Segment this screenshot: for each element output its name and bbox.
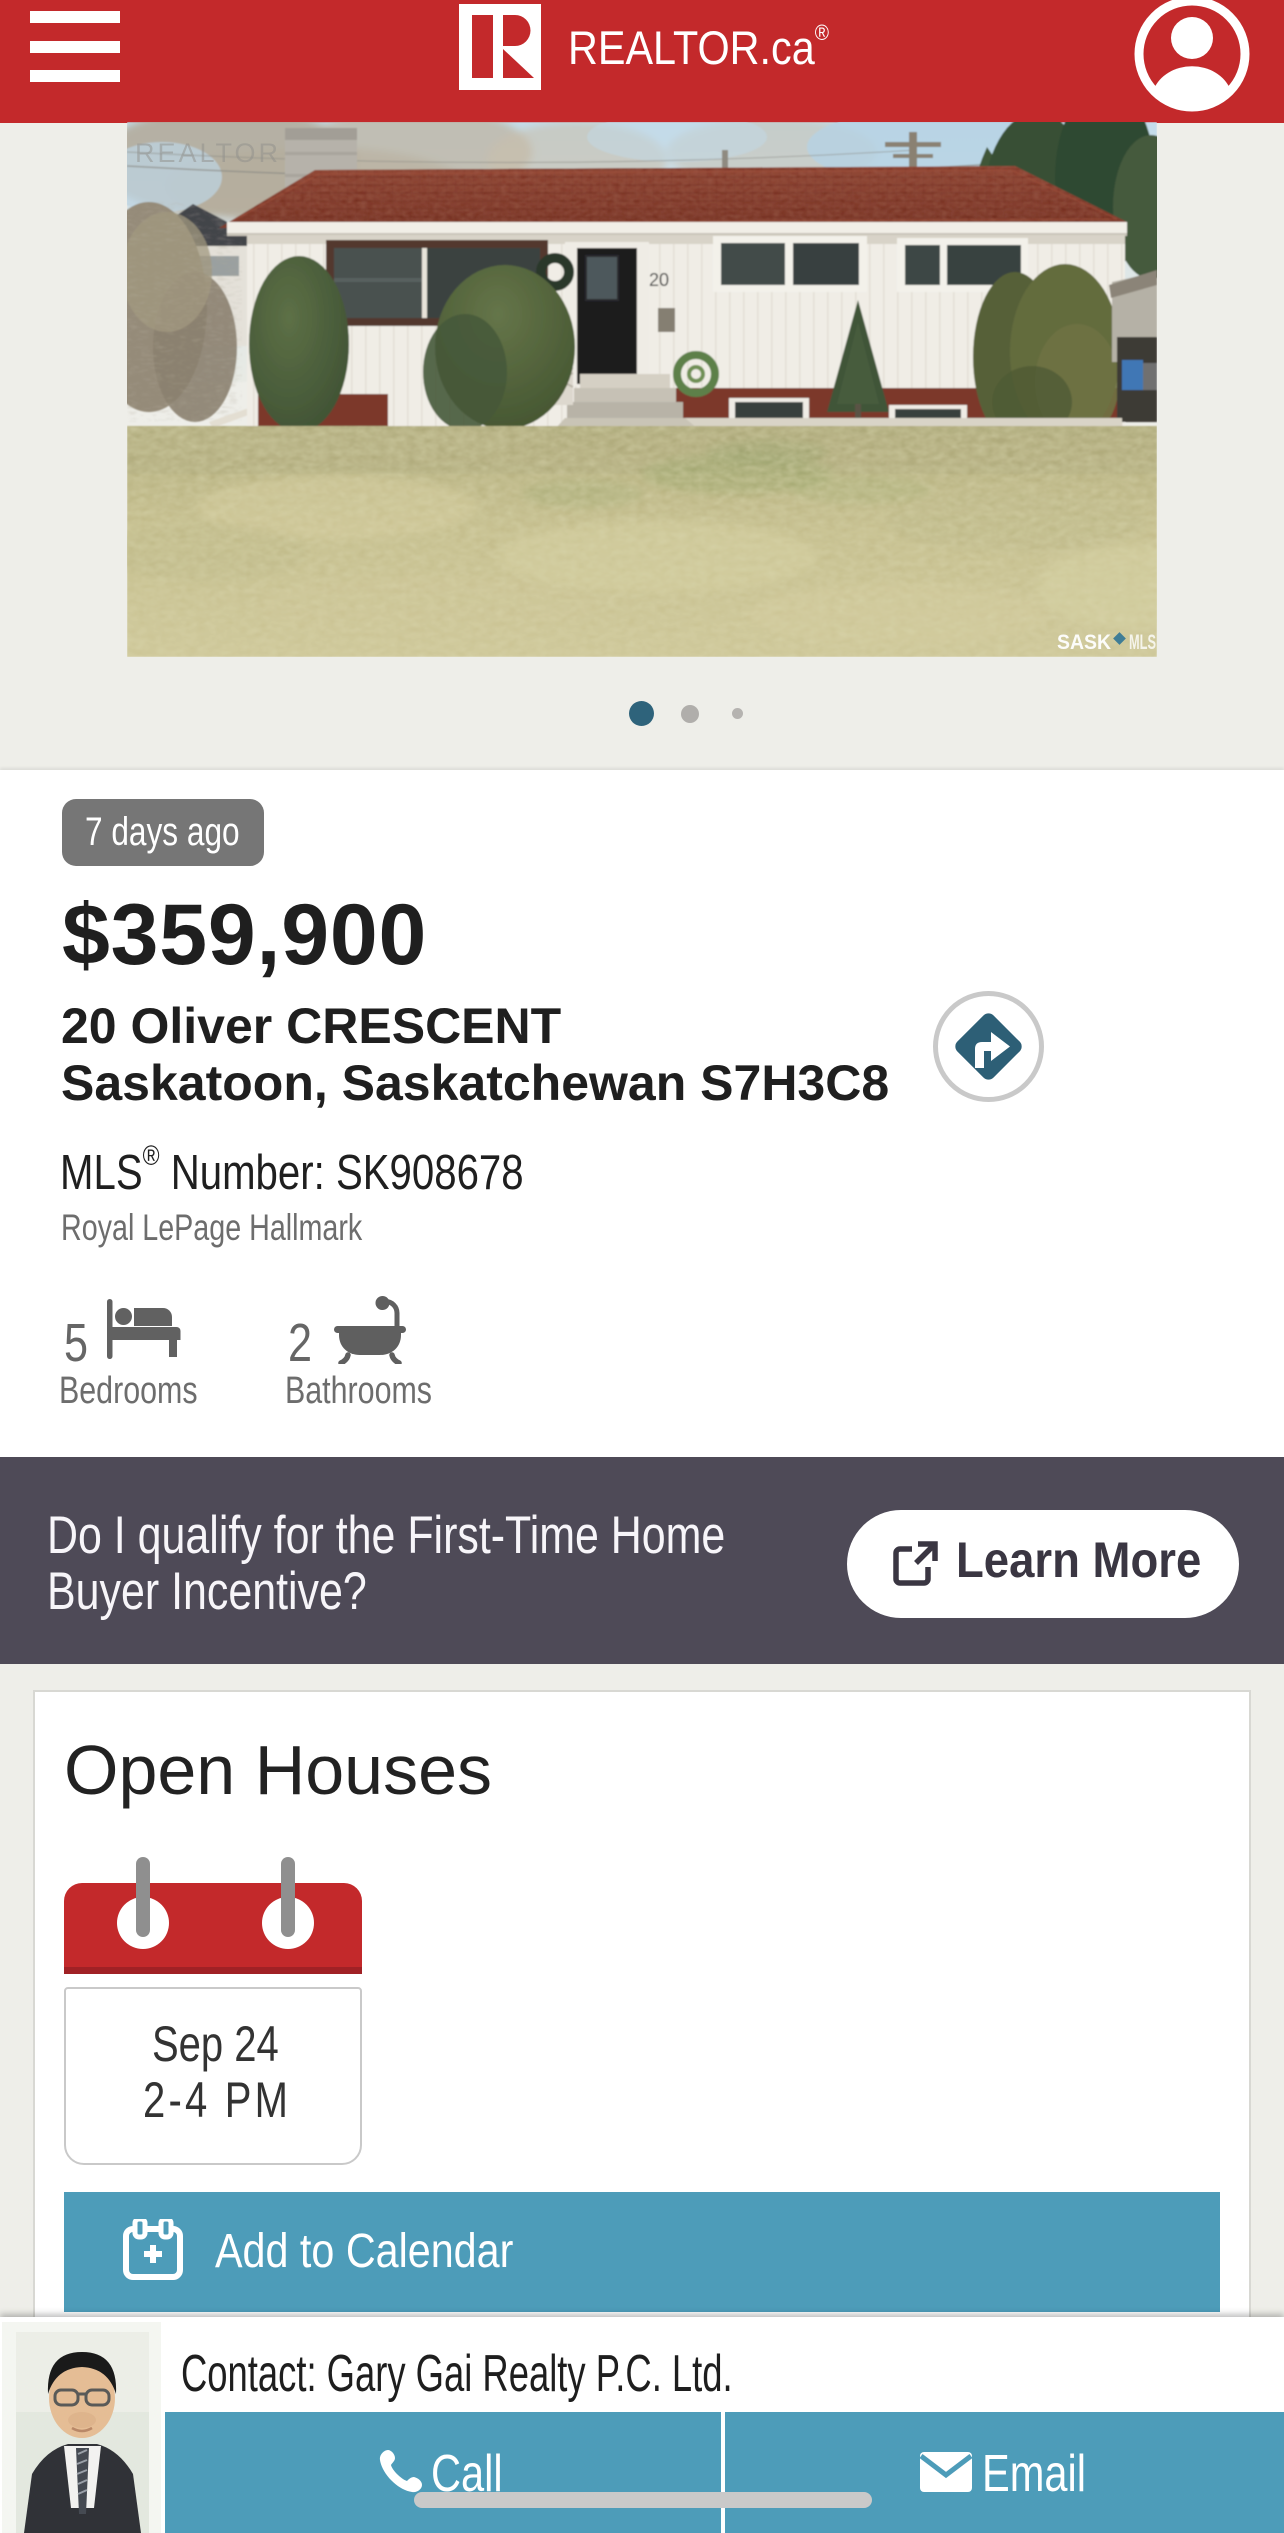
svg-text:REALTOR: REALTOR — [135, 138, 281, 168]
svg-text:20: 20 — [649, 270, 669, 290]
svg-text:MLS: MLS — [1129, 631, 1156, 654]
svg-text:SASK: SASK — [1057, 631, 1111, 654]
